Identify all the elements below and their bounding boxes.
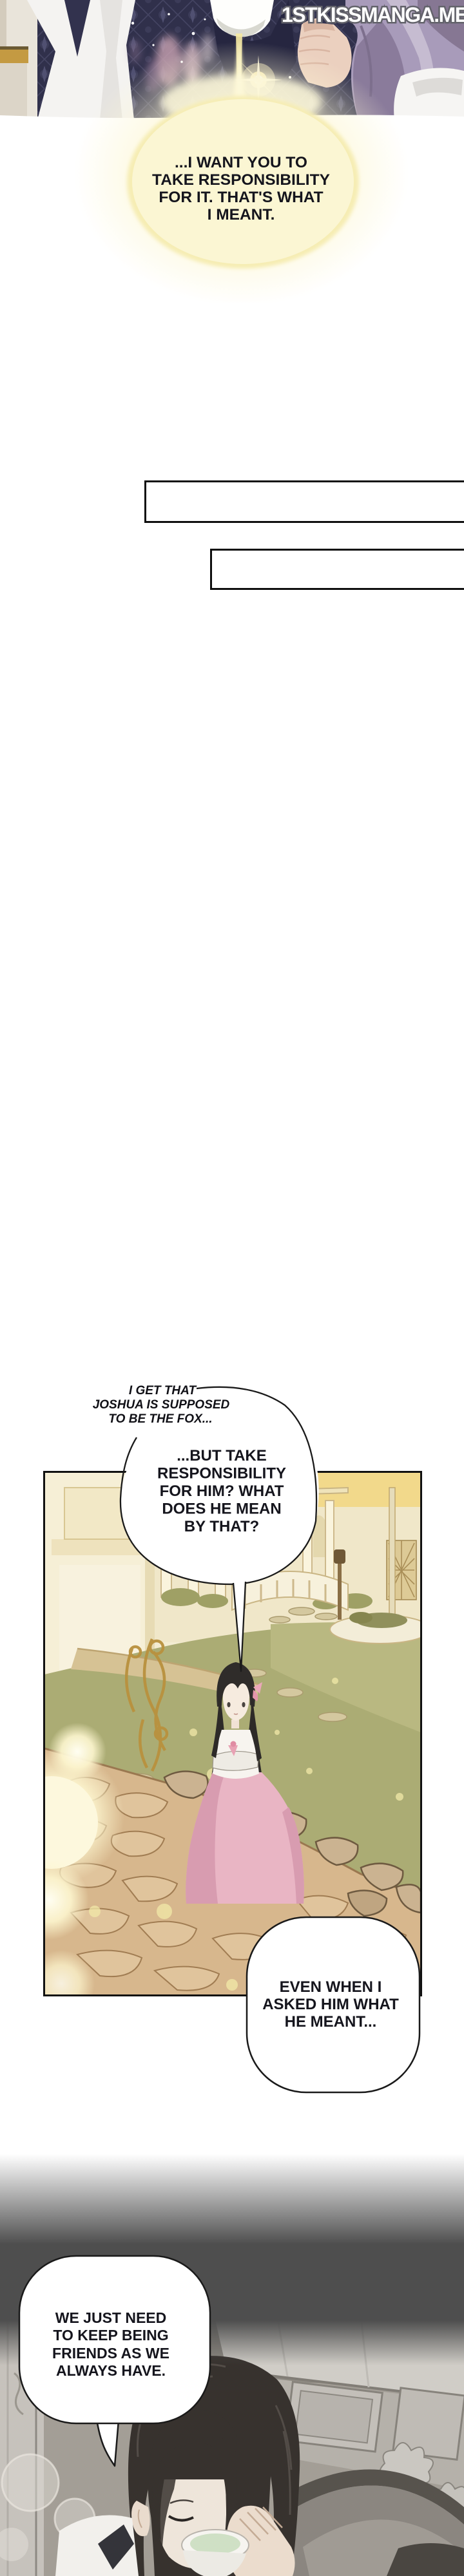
svg-text:FRIENDS AS WE: FRIENDS AS WE xyxy=(52,2345,169,2362)
svg-text:TAKE RESPONSIBILITY: TAKE RESPONSIBILITY xyxy=(152,171,330,189)
svg-text:EVEN WHEN I: EVEN WHEN I xyxy=(280,1978,382,1996)
svg-text:I MEANT.: I MEANT. xyxy=(208,206,275,223)
svg-text:ASKED HIM WHAT: ASKED HIM WHAT xyxy=(262,1996,399,2013)
svg-text:BY THAT?: BY THAT? xyxy=(184,1518,259,1535)
svg-text:I GET THAT: I GET THAT xyxy=(129,1384,197,1397)
svg-text:...BUT TAKE: ...BUT TAKE xyxy=(177,1447,267,1464)
svg-text:TO KEEP BEING: TO KEEP BEING xyxy=(53,2327,168,2344)
svg-text:WE JUST NEED: WE JUST NEED xyxy=(55,2309,167,2326)
svg-text:TO BE THE FOX...: TO BE THE FOX... xyxy=(108,1412,212,1426)
svg-text:1STKISSMANGA.ME: 1STKISSMANGA.ME xyxy=(282,3,464,26)
svg-text:HE MEANT...: HE MEANT... xyxy=(285,2013,377,2031)
svg-text:JOSHUA IS SUPPOSED: JOSHUA IS SUPPOSED xyxy=(93,1398,230,1412)
svg-text:FOR IT. THAT'S WHAT: FOR IT. THAT'S WHAT xyxy=(159,189,323,206)
svg-text:ALWAYS HAVE.: ALWAYS HAVE. xyxy=(56,2362,166,2379)
svg-text:FOR HIM? WHAT: FOR HIM? WHAT xyxy=(160,1482,284,1500)
svg-text:DOES HE MEAN: DOES HE MEAN xyxy=(162,1501,281,1518)
svg-text:RESPONSIBILITY: RESPONSIBILITY xyxy=(157,1465,286,1482)
svg-text:...I WANT YOU TO: ...I WANT YOU TO xyxy=(175,154,307,171)
